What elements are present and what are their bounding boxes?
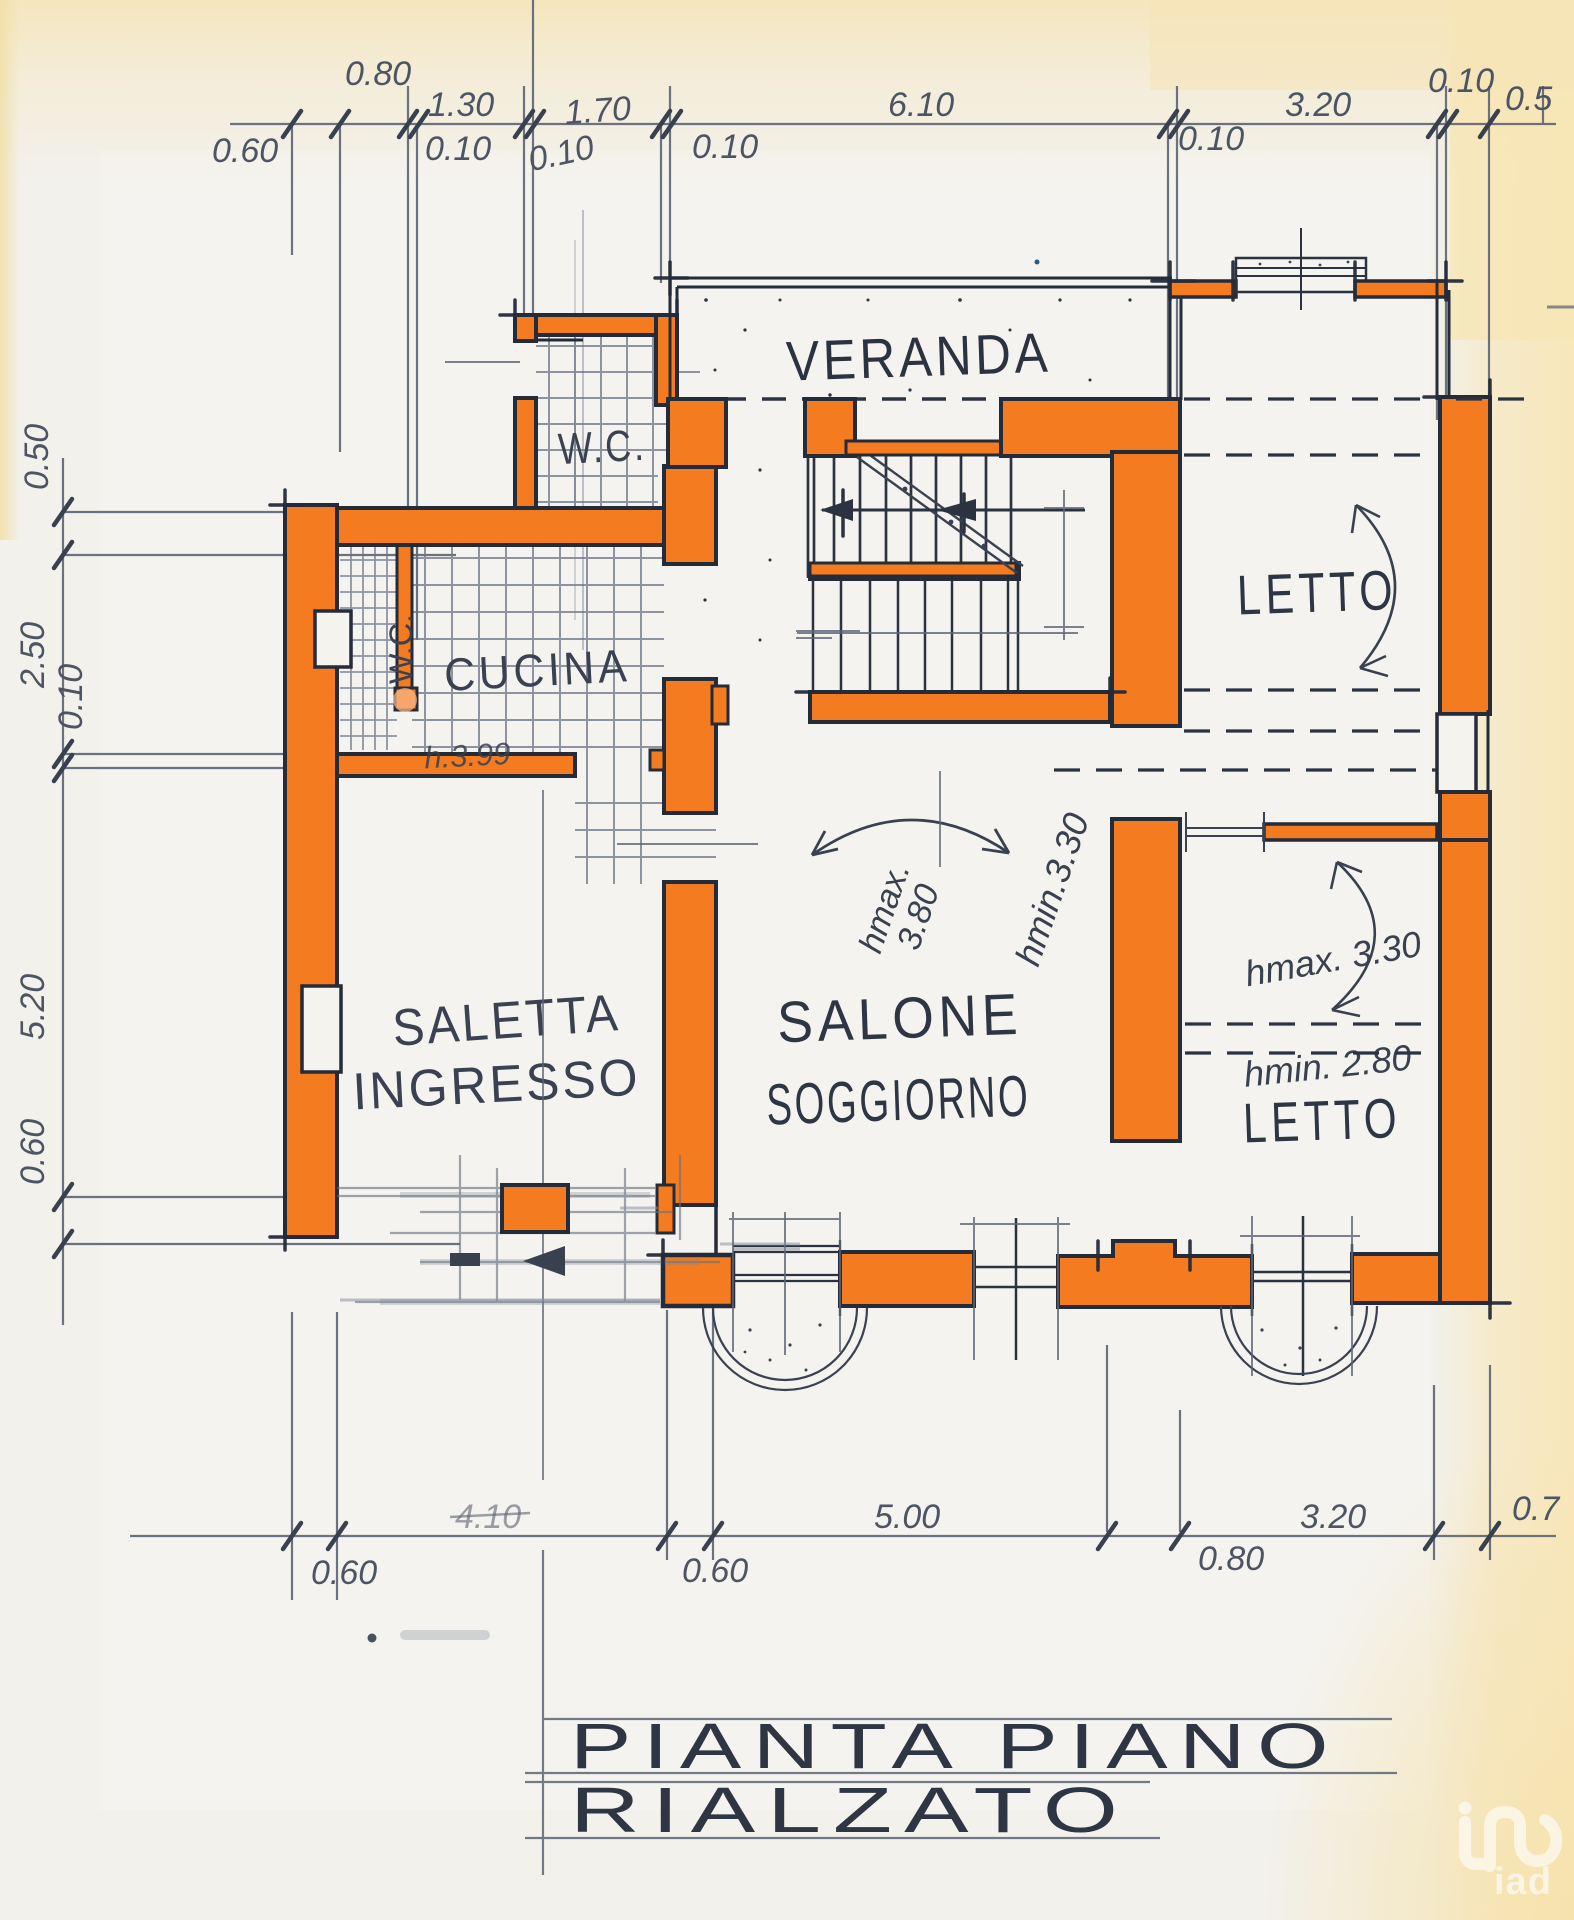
svg-text:VERANDA: VERANDA xyxy=(785,320,1052,392)
svg-text:1.70: 1.70 xyxy=(563,90,632,133)
svg-text:0.60: 0.60 xyxy=(14,1119,52,1185)
svg-text:2.50: 2.50 xyxy=(14,622,52,689)
svg-text:LETTO: LETTO xyxy=(1242,1086,1402,1154)
svg-text:iad: iad xyxy=(1494,1861,1552,1903)
svg-text:RIALZATO: RIALZATO xyxy=(570,1774,1130,1846)
svg-text:0.10: 0.10 xyxy=(1178,120,1244,158)
svg-text:h.3.99: h.3.99 xyxy=(423,736,511,775)
svg-text:LETTO: LETTO xyxy=(1236,558,1398,627)
svg-text:0.50: 0.50 xyxy=(18,424,56,490)
svg-text:CUCINA: CUCINA xyxy=(443,639,631,701)
svg-text:5.20: 5.20 xyxy=(14,974,52,1040)
svg-text:5.00: 5.00 xyxy=(874,1498,940,1536)
svg-text:W.C.: W.C. xyxy=(557,421,647,475)
svg-text:1.30: 1.30 xyxy=(428,86,494,124)
svg-text:0.80: 0.80 xyxy=(1198,1540,1264,1578)
svg-text:6.10: 6.10 xyxy=(888,86,954,124)
svg-text:0.60: 0.60 xyxy=(212,132,278,170)
svg-text:3.20: 3.20 xyxy=(1300,1498,1366,1536)
svg-text:0.80: 0.80 xyxy=(345,55,411,93)
svg-text:0.60: 0.60 xyxy=(682,1552,748,1590)
svg-text:0.10: 0.10 xyxy=(692,128,758,166)
svg-text:SOGGIORNO: SOGGIORNO xyxy=(765,1063,1031,1137)
svg-text:SALONE: SALONE xyxy=(776,982,1023,1056)
svg-text:0.60: 0.60 xyxy=(311,1554,377,1592)
svg-text:0.10: 0.10 xyxy=(425,130,491,168)
svg-text:0.5: 0.5 xyxy=(1505,80,1552,118)
svg-text:0.10: 0.10 xyxy=(52,664,90,730)
svg-text:PIANTA PIANO: PIANTA PIANO xyxy=(570,1710,1340,1782)
svg-text:3.20: 3.20 xyxy=(1285,86,1351,124)
svg-text:0.10: 0.10 xyxy=(1428,62,1494,100)
svg-text:W.C.: W.C. xyxy=(383,614,419,684)
svg-text:0.7: 0.7 xyxy=(1512,1490,1560,1528)
